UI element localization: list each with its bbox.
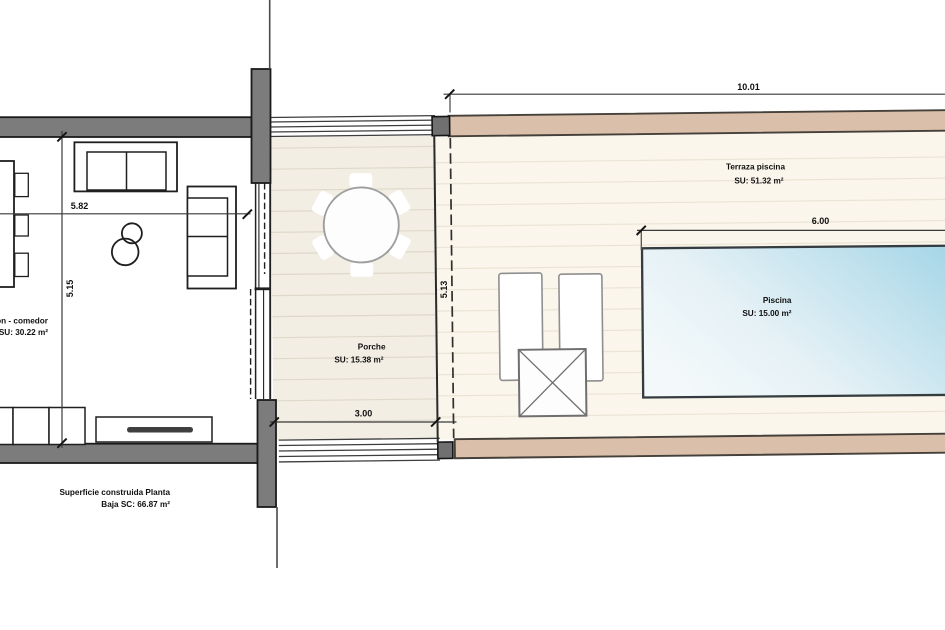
- svg-text:Terraza piscina: Terraza piscina: [726, 163, 785, 172]
- svg-text:Baja SC: 66.87 m²: Baja SC: 66.87 m²: [101, 500, 170, 509]
- svg-text:Porche: Porche: [358, 343, 386, 352]
- svg-text:Superficie construida Planta: Superficie construida Planta: [59, 488, 170, 497]
- svg-text:5.13: 5.13: [439, 281, 449, 299]
- svg-text:SU: 30.22 m²: SU: 30.22 m²: [0, 328, 48, 337]
- svg-text:5.15: 5.15: [65, 280, 75, 298]
- svg-text:3.00: 3.00: [355, 409, 373, 419]
- svg-text:10.01: 10.01: [737, 82, 760, 92]
- svg-text:SU: 51.32 m²: SU: 51.32 m²: [734, 177, 783, 186]
- svg-text:SU: 15.00 m²: SU: 15.00 m²: [742, 309, 791, 318]
- svg-text:5.82: 5.82: [71, 201, 89, 211]
- svg-text:SU: 15.38 m²: SU: 15.38 m²: [334, 356, 383, 365]
- svg-text:Salón - comedor: Salón - comedor: [0, 316, 49, 325]
- svg-text:6.00: 6.00: [812, 216, 830, 226]
- svg-text:Piscina: Piscina: [763, 296, 792, 305]
